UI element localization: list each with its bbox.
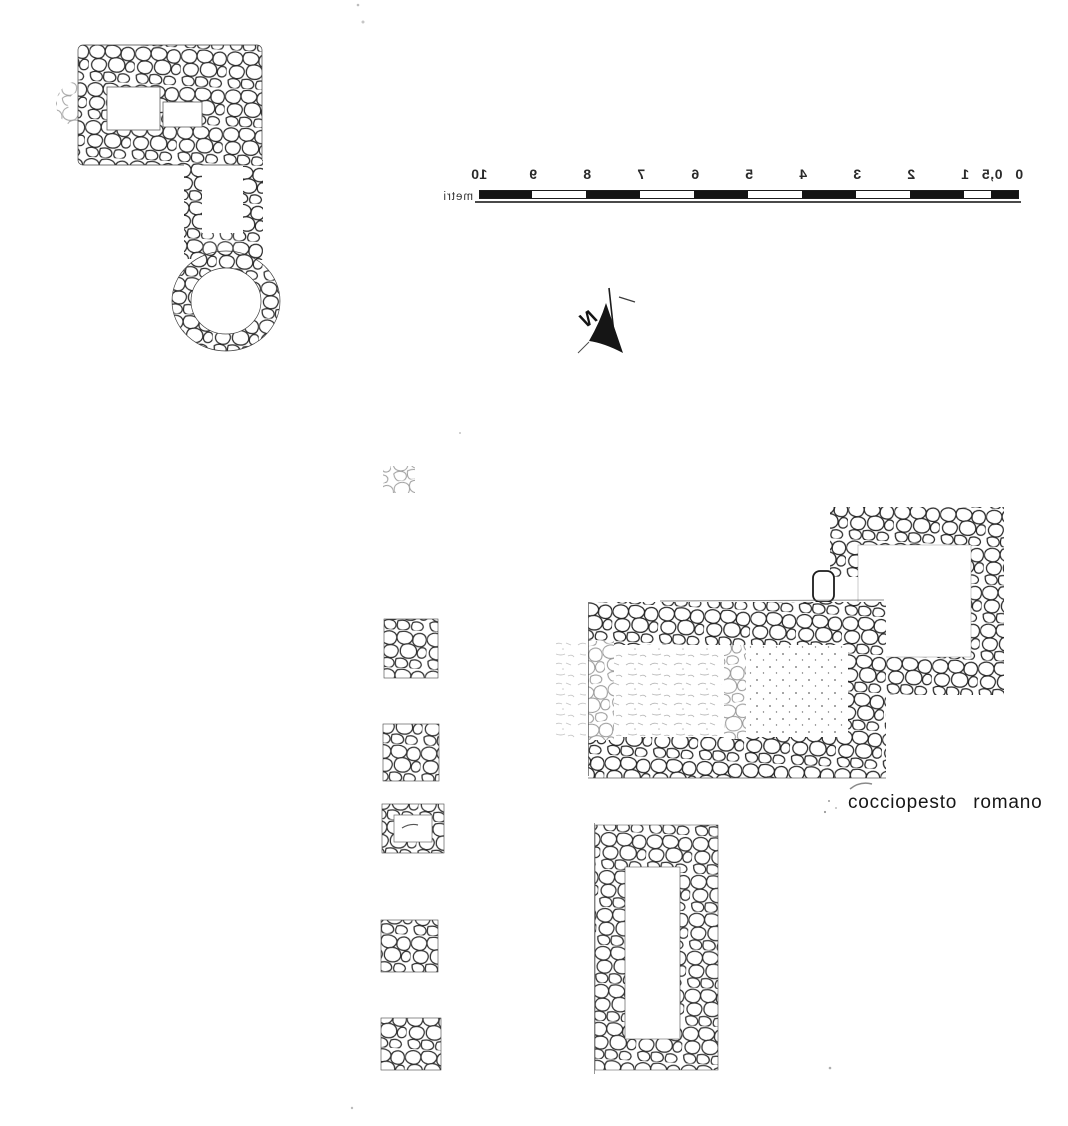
scale-tick-5: 5	[745, 166, 753, 182]
right-room-floor-stipple	[748, 646, 847, 736]
pila-1-fragment	[383, 466, 415, 493]
building-bottom-wall	[588, 737, 886, 778]
scale-tick-4: 4	[799, 166, 807, 182]
speck	[459, 432, 461, 434]
roman-building-plan	[556, 507, 1004, 778]
building-top-edge-line	[660, 600, 884, 601]
building-top-wall	[588, 602, 886, 645]
scale-tick-9: 9	[529, 166, 537, 182]
speck	[824, 811, 826, 813]
scale-tick-2: 2	[907, 166, 915, 182]
scale-tick-0: 0	[1015, 166, 1023, 182]
scale-tick-7: 7	[637, 166, 645, 182]
pillar-bases-column	[381, 466, 444, 1070]
square-room-left-wall	[830, 507, 858, 577]
north-arrow-tail-line	[578, 342, 589, 353]
pila-3	[383, 724, 439, 781]
kiln-room-1-opening	[107, 87, 160, 130]
enclosure-walls	[595, 825, 718, 1070]
speck	[357, 4, 360, 7]
scanned-site-plan-page: N 0 0,5 1 2 3 4 5 6 7 8 9 10	[0, 0, 1068, 1126]
pila-5	[381, 920, 438, 972]
label-squiggle-mark	[850, 783, 872, 789]
rectangular-enclosure-plan	[595, 823, 719, 1074]
kiln-building-plan	[56, 45, 280, 351]
speck	[362, 21, 365, 24]
north-arrow: N	[576, 288, 635, 353]
scale-bar-segment	[586, 191, 640, 198]
pila-6	[381, 1018, 441, 1070]
speck	[351, 1107, 353, 1109]
speck	[835, 807, 837, 809]
scale-bar-segment	[480, 191, 532, 198]
pila-4-opening	[394, 815, 432, 842]
exterior-west-traces	[556, 642, 586, 742]
scale-bar-baseline	[475, 201, 1021, 203]
scale-bar-segment	[694, 191, 748, 198]
speck	[829, 1067, 832, 1070]
building-left-wall-fragment	[588, 641, 614, 740]
kiln-circular-chamber-wall	[172, 251, 280, 351]
left-room-floor-traces	[614, 646, 722, 736]
scale-tick-05: 0,5	[982, 166, 1003, 182]
scale-bar-segment	[802, 191, 856, 198]
kiln-room-2-opening	[163, 102, 202, 127]
door-pivot-block	[813, 571, 834, 602]
scale-tick-3: 3	[853, 166, 861, 182]
speck	[828, 800, 830, 802]
scale-bar: 0 0,5 1 2 3 4 5 6 7 8 9 10 metri	[433, 162, 1019, 212]
scale-bar-unit-label: metri	[442, 191, 473, 203]
pila-2	[384, 619, 438, 678]
scale-bar-segment	[910, 191, 964, 198]
scale-bar-segment	[991, 191, 1018, 198]
scale-tick-1: 1	[961, 166, 969, 182]
scale-tick-8: 8	[583, 166, 591, 182]
north-arrow-cross-tick	[619, 297, 635, 302]
scale-bar-strip	[479, 190, 1019, 199]
floor-material-label: cocciopesto romano	[848, 792, 1042, 814]
building-partition-wall-fragment	[724, 645, 746, 739]
scale-tick-10: 10	[471, 166, 488, 182]
scale-tick-6: 6	[691, 166, 699, 182]
